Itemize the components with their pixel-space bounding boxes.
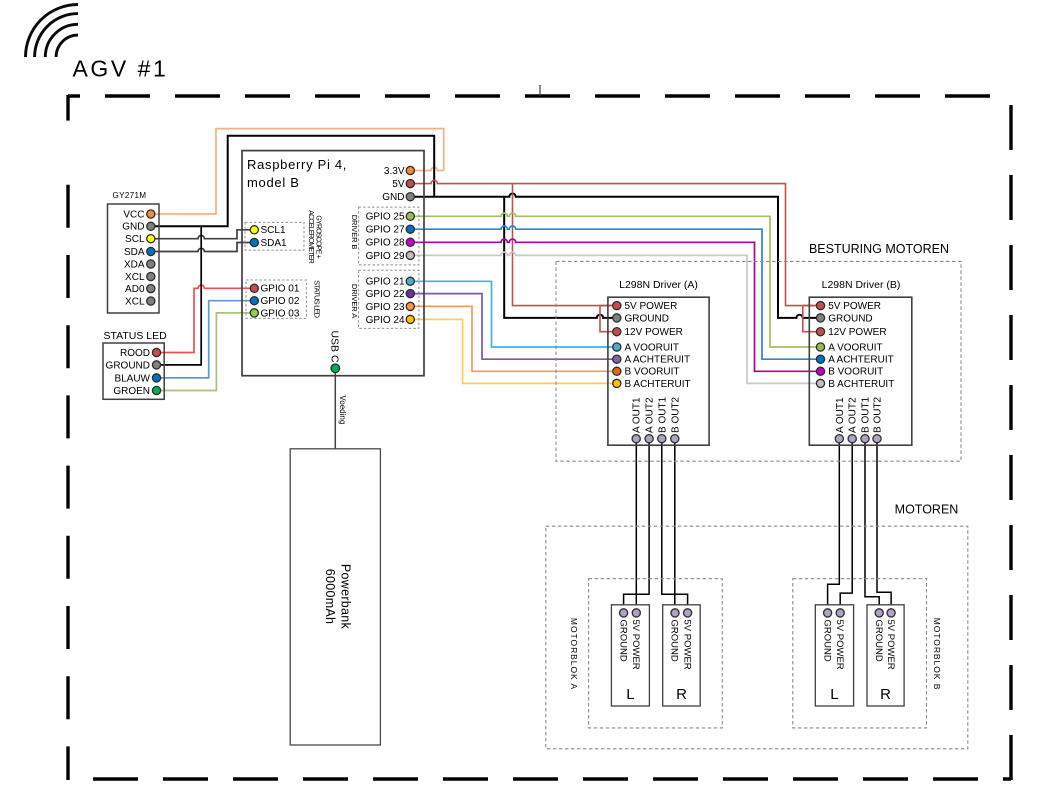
svg-text:GROUND: GROUND [821,620,832,662]
svg-text:MOTORBLOK B: MOTORBLOK B [932,618,942,691]
svg-text:GYROSCOPE +: GYROSCOPE + [315,215,322,258]
svg-text:GPIO 25: GPIO 25 [366,212,405,223]
svg-text:12V POWER: 12V POWER [625,327,683,338]
svg-text:A ACHTERUIT: A ACHTERUIT [625,355,691,366]
svg-text:ACCELEROMETER: ACCELEROMETER [307,210,314,263]
svg-text:5V POWER: 5V POWER [834,620,845,670]
svg-text:AGV #1: AGV #1 [73,56,169,82]
svg-text:GY271M: GY271M [113,191,147,200]
svg-text:XDA: XDA [124,259,145,270]
svg-text:GND: GND [122,222,144,233]
svg-text:GROUND: GROUND [625,313,669,324]
svg-text:L298N Driver (B): L298N Driver (B) [822,279,901,291]
svg-text:GPIO 29: GPIO 29 [366,251,405,262]
svg-text:L: L [830,686,838,703]
svg-text:Powerbank: Powerbank [339,564,353,630]
svg-text:model B: model B [247,175,300,190]
svg-text:GROUND: GROUND [669,620,680,662]
svg-text:GPIO 23: GPIO 23 [366,302,405,313]
svg-text:5V POWER: 5V POWER [625,301,678,312]
svg-text:SDA: SDA [124,247,145,258]
svg-text:B VOORUIT: B VOORUIT [828,367,883,378]
svg-text:BLAUW: BLAUW [114,373,150,384]
svg-text:ROOD: ROOD [120,348,150,359]
svg-text:GROUND: GROUND [828,313,872,324]
svg-text:AD0: AD0 [125,284,145,295]
svg-text:A OUT2: A OUT2 [645,397,656,433]
svg-text:A OUT1: A OUT1 [835,397,846,433]
svg-text:GPIO 01: GPIO 01 [261,284,300,295]
svg-text:GPIO 28: GPIO 28 [366,238,405,249]
svg-text:B ACHTERUIT: B ACHTERUIT [828,379,894,390]
svg-text:XCL: XCL [125,272,145,283]
svg-text:GROEN: GROEN [113,386,150,397]
svg-text:R: R [676,686,687,703]
svg-text:DRIVER A: DRIVER A [350,284,359,318]
svg-text:GPIO 02: GPIO 02 [261,296,300,307]
svg-text:STATUS LED: STATUS LED [312,280,321,319]
svg-text:5V POWER: 5V POWER [681,620,692,670]
svg-text:GND: GND [382,192,404,203]
svg-text:A OUT2: A OUT2 [848,397,859,433]
svg-text:SCL1: SCL1 [261,225,286,236]
svg-text:B ACHTERUIT: B ACHTERUIT [625,379,691,390]
svg-text:XCL: XCL [125,296,145,307]
svg-text:6000mAh: 6000mAh [323,569,337,625]
svg-text:B VOORUIT: B VOORUIT [625,367,680,378]
svg-text:SDA1: SDA1 [261,238,288,249]
svg-text:A ACHTERUIT: A ACHTERUIT [828,355,894,366]
svg-text:GPIO 27: GPIO 27 [366,225,405,236]
svg-text:DRIVER B: DRIVER B [350,215,359,250]
svg-text:A OUT1: A OUT1 [632,397,643,433]
svg-text:5V: 5V [392,179,405,190]
svg-text:VCC: VCC [123,209,144,220]
svg-text:B OUT2: B OUT2 [670,396,681,433]
svg-text:STATUS LED: STATUS LED [104,330,168,342]
svg-text:MOTOREN: MOTOREN [895,503,959,517]
svg-text:GPIO 03: GPIO 03 [261,308,300,319]
svg-text:Voeding: Voeding [338,395,347,424]
svg-text:GROUND: GROUND [617,620,628,662]
svg-text:GROUND: GROUND [873,620,884,662]
svg-text:5V POWER: 5V POWER [630,620,641,670]
svg-text:Raspberry Pi 4,: Raspberry Pi 4, [247,157,347,172]
svg-text:12V POWER: 12V POWER [828,327,886,338]
svg-text:MOTORBLOK A: MOTORBLOK A [569,618,579,690]
svg-text:5V POWER: 5V POWER [828,301,881,312]
svg-text:A VOORUIT: A VOORUIT [828,342,882,353]
svg-text:SCL: SCL [125,234,145,245]
svg-text:B OUT2: B OUT2 [873,396,884,433]
svg-text:B OUT1: B OUT1 [861,396,872,433]
svg-text:L: L [626,686,634,703]
svg-text:R: R [880,686,891,703]
svg-text:GPIO 22: GPIO 22 [366,289,405,300]
svg-text:L298N Driver (A): L298N Driver (A) [619,279,698,291]
svg-text:USB C: USB C [329,330,341,363]
svg-text:A VOORUIT: A VOORUIT [625,342,679,353]
svg-text:3.3V: 3.3V [384,166,405,177]
svg-text:BESTURING MOTOREN: BESTURING MOTOREN [809,242,949,256]
svg-text:GROUND: GROUND [106,360,150,371]
svg-text:GPIO 24: GPIO 24 [366,315,405,326]
svg-text:B OUT1: B OUT1 [657,396,668,433]
svg-text:GPIO 21: GPIO 21 [366,277,405,288]
svg-text:5V POWER: 5V POWER [885,620,896,670]
